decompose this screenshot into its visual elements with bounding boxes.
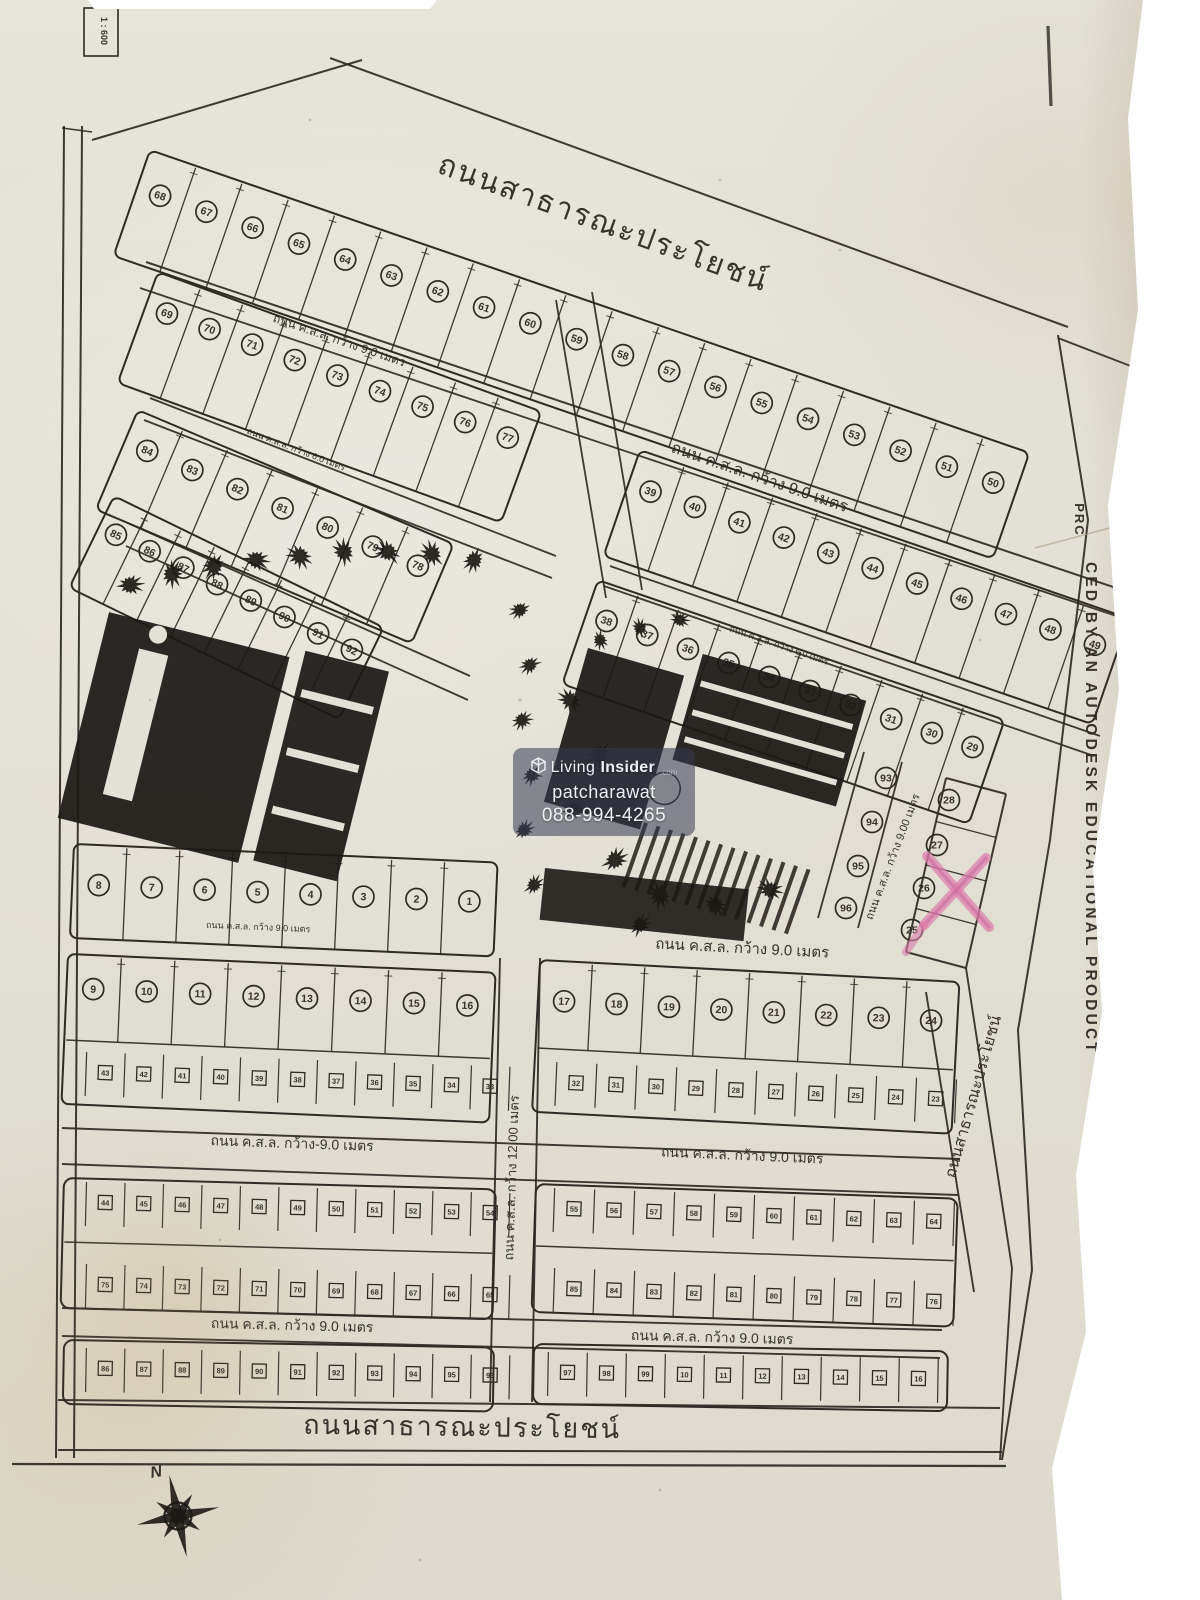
svg-text:14: 14	[354, 995, 366, 1008]
lot-number-square: 73	[175, 1279, 189, 1293]
lot-number-square: 78	[847, 1291, 861, 1305]
lot-number-badge: 46	[948, 585, 975, 612]
lot-number-badge: 89	[237, 586, 265, 614]
lot-number-badge: 47	[993, 601, 1020, 628]
paper-speck	[419, 1559, 422, 1562]
svg-text:8: 8	[96, 880, 103, 892]
lot-number-badge: 71	[239, 331, 266, 358]
lot-number-badge: 9	[82, 978, 104, 1000]
svg-text:71: 71	[244, 338, 259, 353]
lot-number-badge: 66	[239, 214, 266, 241]
lot-number-badge: 8	[88, 874, 110, 896]
lot-number-square: 79	[807, 1290, 821, 1304]
svg-text:36: 36	[680, 642, 695, 657]
svg-text:61: 61	[809, 1213, 818, 1222]
svg-text:23: 23	[873, 1012, 885, 1025]
svg-text:58: 58	[615, 348, 630, 363]
svg-text:3: 3	[360, 891, 367, 903]
lot-number-square: 86	[98, 1361, 112, 1375]
svg-text:70: 70	[202, 322, 217, 337]
lot-number-badge: 6	[194, 879, 216, 901]
lot-number-square: 68	[367, 1284, 381, 1298]
svg-text:24: 24	[891, 1093, 901, 1102]
lot-number-badge: 94	[862, 812, 883, 833]
tree-symbol	[524, 874, 545, 895]
lot-number-badge: 90	[270, 603, 298, 631]
lot-number-square: 53	[444, 1204, 458, 1218]
lot-number-square: 38	[290, 1072, 304, 1086]
lot-number-badge: 82	[224, 475, 252, 503]
lot-number-square: 43	[98, 1065, 112, 1079]
svg-text:55: 55	[570, 1205, 579, 1214]
svg-text:ถนน ค.ส.ล. กว้าง 12.00 เมตร: ถนน ค.ส.ล. กว้าง 12.00 เมตร	[501, 1095, 522, 1261]
lot-number-badge: 31	[878, 706, 905, 733]
lot-number-square: 63	[887, 1213, 901, 1227]
svg-text:84: 84	[610, 1286, 619, 1295]
svg-text:52: 52	[893, 444, 908, 459]
paper-speck	[719, 179, 721, 181]
svg-text:ถนน ค.ส.ล. กว้าง 9.0 เมตร: ถนน ค.ส.ล. กว้าง 9.0 เมตร	[211, 1315, 374, 1335]
lot-number-square: 80	[767, 1288, 781, 1302]
svg-text:63: 63	[384, 268, 399, 283]
svg-text:95: 95	[852, 861, 864, 873]
svg-text:85: 85	[570, 1285, 579, 1294]
svg-text:93: 93	[370, 1369, 378, 1378]
svg-text:63: 63	[889, 1216, 898, 1225]
lot-number-badge: 1	[458, 890, 480, 912]
lot-number-square: 36	[367, 1075, 381, 1089]
svg-text:ถนน ค.ส.ล. กว้าง 6.0 เมตร: ถนน ค.ส.ล. กว้าง 6.0 เมตร	[728, 623, 830, 667]
svg-text:19: 19	[663, 1001, 675, 1014]
svg-text:76: 76	[929, 1297, 938, 1306]
lot-number-badge: 80	[314, 514, 342, 542]
lot-number-badge: 67	[193, 198, 220, 225]
svg-text:71: 71	[255, 1284, 264, 1293]
svg-text:12: 12	[247, 990, 259, 1003]
svg-text:86: 86	[101, 1364, 109, 1373]
paper-speck	[309, 119, 312, 122]
svg-text:91: 91	[293, 1368, 301, 1377]
svg-text:66: 66	[245, 221, 260, 236]
svg-text:23: 23	[931, 1094, 940, 1103]
svg-text:91: 91	[310, 626, 326, 642]
lot-number-badge: 56	[702, 374, 729, 401]
svg-text:40: 40	[216, 1073, 225, 1082]
lot-number-square: 97	[560, 1365, 574, 1379]
lot-number-square: 44	[98, 1195, 112, 1209]
lot-number-badge: 74	[367, 378, 394, 405]
svg-text:96: 96	[840, 903, 852, 915]
photo-of-plat-document: 1 : 600686766656463626160595857565554535…	[0, 0, 1200, 1600]
svg-text:10: 10	[680, 1370, 688, 1379]
svg-text:13: 13	[797, 1372, 805, 1381]
svg-text:17: 17	[558, 996, 570, 1009]
svg-text:5: 5	[254, 887, 261, 899]
svg-text:81: 81	[275, 501, 291, 517]
lot-number-square: 12	[755, 1369, 769, 1383]
lot-number-badge: 58	[610, 342, 637, 369]
lot-number-square: 57	[647, 1204, 661, 1218]
svg-text:62: 62	[849, 1214, 858, 1223]
watermark-brand-living: Living	[551, 760, 596, 776]
svg-text:ถนนสาธารณะประโยชน์: ถนนสาธารณะประโยชน์	[433, 146, 773, 298]
paper-speck	[879, 1379, 881, 1381]
lot-number-square: 16	[911, 1371, 925, 1385]
lot-number-badge: 10	[136, 981, 158, 1003]
svg-text:77: 77	[500, 431, 515, 446]
lot-number-badge: 16	[456, 995, 478, 1017]
lot-number-square: 99	[638, 1367, 652, 1381]
svg-text:12: 12	[758, 1372, 766, 1381]
svg-text:41: 41	[732, 515, 747, 530]
tree-symbol	[463, 547, 483, 574]
svg-text:37: 37	[332, 1077, 341, 1086]
svg-text:88: 88	[178, 1366, 186, 1375]
svg-text:57: 57	[650, 1207, 659, 1216]
svg-text:10: 10	[141, 986, 153, 999]
svg-text:87: 87	[139, 1365, 147, 1374]
svg-text:ถนน ค.ส.ล. กว้าง-9.0 เมตร: ถนน ค.ส.ล. กว้าง-9.0 เมตร	[210, 1132, 374, 1154]
tree-symbol	[332, 537, 353, 568]
lot-number-square: 56	[607, 1203, 621, 1217]
lot-number-badge: 19	[658, 996, 680, 1018]
svg-text:36: 36	[370, 1078, 379, 1087]
lot-number-badge: 22	[815, 1004, 837, 1026]
svg-text:79: 79	[809, 1293, 818, 1302]
svg-text:7: 7	[148, 882, 155, 894]
lot-number-badge: 59	[563, 326, 590, 353]
lot-number-badge: 43	[815, 540, 842, 567]
lot-number-badge: 65	[286, 230, 313, 257]
lot-number-square: 77	[887, 1293, 901, 1307]
svg-text:99: 99	[641, 1370, 649, 1379]
svg-text:78: 78	[849, 1294, 858, 1303]
svg-text:68: 68	[152, 189, 167, 204]
svg-text:16: 16	[914, 1374, 922, 1383]
lot-number-badge: 17	[553, 990, 575, 1012]
svg-text:64: 64	[929, 1217, 938, 1226]
lot-number-badge: 3	[353, 886, 375, 908]
lot-number-square: 90	[252, 1364, 266, 1378]
svg-text:43: 43	[101, 1069, 110, 1078]
svg-text:50: 50	[332, 1204, 341, 1213]
lot-number-square: 28	[729, 1083, 744, 1098]
paper-speck	[518, 698, 521, 701]
living-insider-logo-icon	[531, 757, 546, 778]
lot-number-square: 39	[252, 1071, 266, 1085]
lot-number-square: 52	[406, 1203, 420, 1217]
svg-text:40: 40	[687, 500, 702, 515]
svg-text:60: 60	[523, 316, 538, 331]
svg-text:82: 82	[690, 1289, 699, 1298]
svg-text:72: 72	[287, 353, 302, 368]
lot-number-square: 65	[483, 1287, 497, 1301]
paper-speck	[659, 1489, 662, 1492]
svg-text:86: 86	[142, 544, 158, 560]
svg-text:31: 31	[612, 1080, 621, 1089]
lot-number-badge: 55	[748, 390, 775, 417]
lot-number-square: 51	[367, 1202, 381, 1216]
lot-number-badge: 70	[196, 316, 223, 343]
svg-text:18: 18	[610, 998, 622, 1011]
svg-text:92: 92	[332, 1368, 340, 1377]
svg-text:15: 15	[875, 1374, 883, 1383]
lot-number-badge: 91	[304, 619, 332, 647]
svg-text:56: 56	[610, 1206, 619, 1215]
lot-number-badge: 39	[637, 478, 664, 505]
svg-text:21: 21	[768, 1007, 780, 1020]
svg-text:90: 90	[276, 610, 292, 626]
lot-number-square: 76	[927, 1294, 941, 1308]
svg-text:83: 83	[650, 1287, 659, 1296]
svg-text:1: 1	[466, 896, 473, 908]
lot-number-badge: 50	[980, 469, 1007, 496]
svg-text:56: 56	[708, 380, 723, 395]
svg-text:84: 84	[139, 444, 155, 460]
lot-number-square: 46	[175, 1197, 189, 1211]
svg-text:26: 26	[918, 883, 930, 895]
lot-number-square: 40	[213, 1069, 227, 1083]
svg-text:85: 85	[108, 527, 124, 543]
lot-number-badge: 7	[141, 876, 163, 898]
lot-number-square: 98	[599, 1366, 613, 1380]
svg-text:38: 38	[293, 1075, 302, 1084]
tree-symbol	[601, 847, 629, 870]
lot-number-badge: 2	[405, 888, 427, 910]
watermark-name: patcharawat	[552, 782, 656, 803]
lot-number-square: 23	[928, 1091, 943, 1106]
lot-number-square: 92	[329, 1365, 343, 1379]
lot-number-square: 55	[567, 1201, 581, 1215]
lot-number-square: 24	[888, 1090, 903, 1105]
svg-text:81: 81	[730, 1290, 739, 1299]
svg-text:48: 48	[1043, 622, 1058, 637]
svg-text:73: 73	[178, 1282, 187, 1291]
lot-number-square: 60	[767, 1208, 781, 1222]
svg-text:75: 75	[101, 1280, 110, 1289]
svg-text:ถนนสาธารณะประโยชน์: ถนนสาธารณะประโยชน์	[303, 1409, 621, 1444]
lot-number-badge: 53	[841, 421, 868, 448]
svg-text:41: 41	[178, 1071, 187, 1080]
lot-number-square: 58	[687, 1206, 701, 1220]
lot-number-square: 75	[98, 1277, 112, 1291]
svg-text:ถนน ค.ส.ล. กว้าง 9.0 เมตร: ถนน ค.ส.ล. กว้าง 9.0 เมตร	[655, 935, 830, 961]
lot-number-badge: 72	[281, 347, 308, 374]
svg-text:78: 78	[410, 558, 426, 574]
tree-symbol	[512, 711, 534, 731]
svg-text:20: 20	[715, 1004, 727, 1017]
svg-text:53: 53	[447, 1207, 456, 1216]
svg-text:67: 67	[409, 1288, 418, 1297]
lot-number-badge: 42	[770, 524, 797, 551]
lot-number-square: 15	[872, 1371, 886, 1385]
lot-number-square: 30	[649, 1079, 664, 1094]
lot-number-badge: 60	[517, 310, 544, 337]
svg-text:53: 53	[847, 428, 862, 443]
tree-symbol	[757, 877, 785, 899]
lot-row-phase2: 8687888990919293949596	[86, 1348, 510, 1399]
svg-text:77: 77	[889, 1296, 898, 1305]
svg-text:25: 25	[851, 1091, 860, 1100]
svg-text:42: 42	[139, 1070, 148, 1079]
svg-text:6: 6	[201, 884, 208, 896]
svg-text:93: 93	[880, 773, 892, 785]
paper-sheet: 1 : 600686766656463626160595857565554535…	[0, 0, 1200, 1600]
lot-number-badge: 23	[868, 1007, 890, 1029]
svg-text:ถนน ค.ส.ล. กว้าง 9.0 เมตร: ถนน ค.ส.ล. กว้าง 9.0 เมตร	[631, 1327, 794, 1347]
lot-number-square: 50	[329, 1201, 343, 1215]
svg-text:31: 31	[884, 712, 899, 727]
lot-number-square: 62	[847, 1211, 861, 1225]
tree-symbol	[509, 603, 531, 620]
svg-text:15: 15	[408, 997, 420, 1010]
lot-number-badge: 13	[296, 988, 318, 1010]
svg-text:29: 29	[691, 1084, 700, 1093]
svg-text:51: 51	[939, 460, 954, 475]
svg-text:68: 68	[370, 1287, 379, 1296]
svg-text:24: 24	[925, 1015, 937, 1028]
lot-number-badge: 5	[247, 881, 269, 903]
svg-text:11: 11	[194, 988, 206, 1000]
lot-number-badge: 75	[409, 393, 436, 420]
svg-text:89: 89	[243, 593, 259, 609]
lot-row-phase2: 97989910111213141516	[548, 1352, 939, 1403]
svg-text:34: 34	[447, 1081, 456, 1090]
lot-number-square: 32	[569, 1076, 584, 1091]
svg-text:50: 50	[985, 476, 1000, 491]
svg-text:1 : 600: 1 : 600	[99, 17, 109, 45]
svg-text:49: 49	[293, 1203, 302, 1212]
lot-number-badge: 64	[332, 246, 359, 273]
svg-text:27: 27	[931, 840, 943, 852]
svg-text:74: 74	[139, 1281, 148, 1290]
svg-text:95: 95	[447, 1370, 455, 1379]
lot-number-square: 10	[677, 1367, 691, 1381]
lot-number-badge: 69	[154, 300, 181, 327]
lot-number-square: 66	[444, 1286, 458, 1300]
svg-text:9: 9	[90, 984, 97, 996]
lot-number-badge: 44	[859, 555, 886, 582]
lot-number-badge: 36	[675, 636, 702, 663]
lot-number-square: 94	[406, 1367, 420, 1381]
svg-text:65: 65	[486, 1290, 495, 1299]
lot-number-square: 67	[406, 1285, 420, 1299]
svg-text:14: 14	[836, 1373, 845, 1382]
svg-text:29: 29	[965, 740, 980, 755]
svg-text:30: 30	[652, 1082, 661, 1091]
svg-text:47: 47	[998, 607, 1013, 622]
lot-number-square: 34	[444, 1078, 458, 1092]
lot-number-badge: 4	[300, 883, 322, 905]
svg-text:74: 74	[372, 384, 387, 399]
svg-text:89: 89	[216, 1366, 224, 1375]
svg-text:45: 45	[909, 576, 924, 591]
svg-text:44: 44	[865, 561, 880, 576]
compass-rose	[128, 1466, 228, 1566]
lot-number-square: 25	[848, 1088, 863, 1103]
svg-text:PRC: PRC	[1072, 503, 1087, 536]
lot-number-badge: 51	[934, 453, 961, 480]
lot-number-square: 96	[483, 1368, 497, 1382]
lot-number-badge: 20	[710, 999, 732, 1021]
svg-text:75: 75	[415, 400, 430, 415]
lot-row: 1718192021222324	[532, 960, 959, 1134]
svg-text:44: 44	[101, 1198, 110, 1207]
svg-text:30: 30	[924, 726, 939, 741]
svg-text:76: 76	[457, 415, 472, 430]
lot-row: 910111213141516	[61, 954, 495, 1123]
tree-symbol	[519, 657, 543, 676]
svg-text:69: 69	[332, 1286, 341, 1295]
svg-text:57: 57	[662, 364, 677, 379]
svg-text:38: 38	[599, 614, 614, 629]
lot-number-badge: 83	[179, 456, 207, 484]
paper-speck	[149, 699, 151, 701]
lot-number-badge: 88	[203, 570, 231, 598]
lot-number-square: 27	[768, 1084, 783, 1099]
lot-number-square: 14	[833, 1370, 847, 1384]
lot-number-badge: 18	[606, 993, 628, 1015]
lot-number-square: 13	[794, 1369, 808, 1383]
watermark-brand-insider: Insider	[600, 760, 655, 776]
lot-number-badge: 38	[593, 608, 620, 635]
lot-number-square: 11	[716, 1368, 730, 1382]
lot-number-badge: 57	[656, 358, 683, 385]
svg-text:13: 13	[301, 993, 313, 1006]
lot-number-badge: 52	[887, 437, 914, 464]
lot-number-square: 74	[137, 1278, 151, 1292]
svg-text:46: 46	[178, 1200, 187, 1209]
lot-number-badge: 12	[243, 985, 265, 1007]
lot-number-badge: 21	[763, 1001, 785, 1023]
watermark-brand-com: .com	[660, 769, 677, 777]
svg-text:ถนน ค.ส.ล. กว้าง 9.0 เมตร: ถนน ค.ส.ล. กว้าง 9.0 เมตร	[206, 920, 311, 935]
svg-text:69: 69	[159, 307, 174, 322]
lot-number-badge: 76	[452, 409, 479, 436]
lot-number-square: 48	[252, 1199, 266, 1213]
lot-number-square: 93	[368, 1366, 382, 1380]
lot-number-badge: 81	[269, 495, 297, 523]
lot-number-badge: 85	[102, 521, 130, 549]
svg-text:97: 97	[563, 1368, 571, 1377]
svg-text:67: 67	[199, 205, 214, 220]
tree-symbol	[116, 575, 146, 594]
svg-text:60: 60	[770, 1212, 779, 1221]
svg-text:35: 35	[409, 1079, 418, 1088]
lot-number-badge: 45	[904, 570, 931, 597]
lot-number-badge: 73	[324, 362, 351, 389]
lot-number-square: 95	[445, 1367, 459, 1381]
lot-number-square: 41	[175, 1068, 189, 1082]
lot-number-badge: 96	[836, 898, 857, 919]
svg-text:33: 33	[486, 1082, 495, 1091]
lot-number-square: 31	[609, 1077, 624, 1092]
svg-text:ถนน ค.ส.ล. กว้าง 9.0 เมตร: ถนน ค.ส.ล. กว้าง 9.0 เมตร	[661, 1143, 824, 1166]
svg-text:62: 62	[430, 284, 445, 299]
svg-text:80: 80	[770, 1292, 779, 1301]
watermark-badge: LivingInsider.com patcharawat 088-994-42…	[513, 748, 695, 836]
svg-text:90: 90	[255, 1367, 263, 1376]
watermark-phone: 088-994-4265	[542, 805, 666, 827]
svg-text:51: 51	[370, 1205, 379, 1214]
lot-number-square: 59	[727, 1207, 741, 1221]
svg-text:59: 59	[730, 1210, 739, 1219]
svg-text:42: 42	[776, 531, 791, 546]
lot-number-square: 82	[687, 1286, 701, 1300]
svg-text:48: 48	[255, 1202, 264, 1211]
lot-number-square: 69	[329, 1283, 343, 1297]
svg-text:26: 26	[811, 1089, 820, 1098]
